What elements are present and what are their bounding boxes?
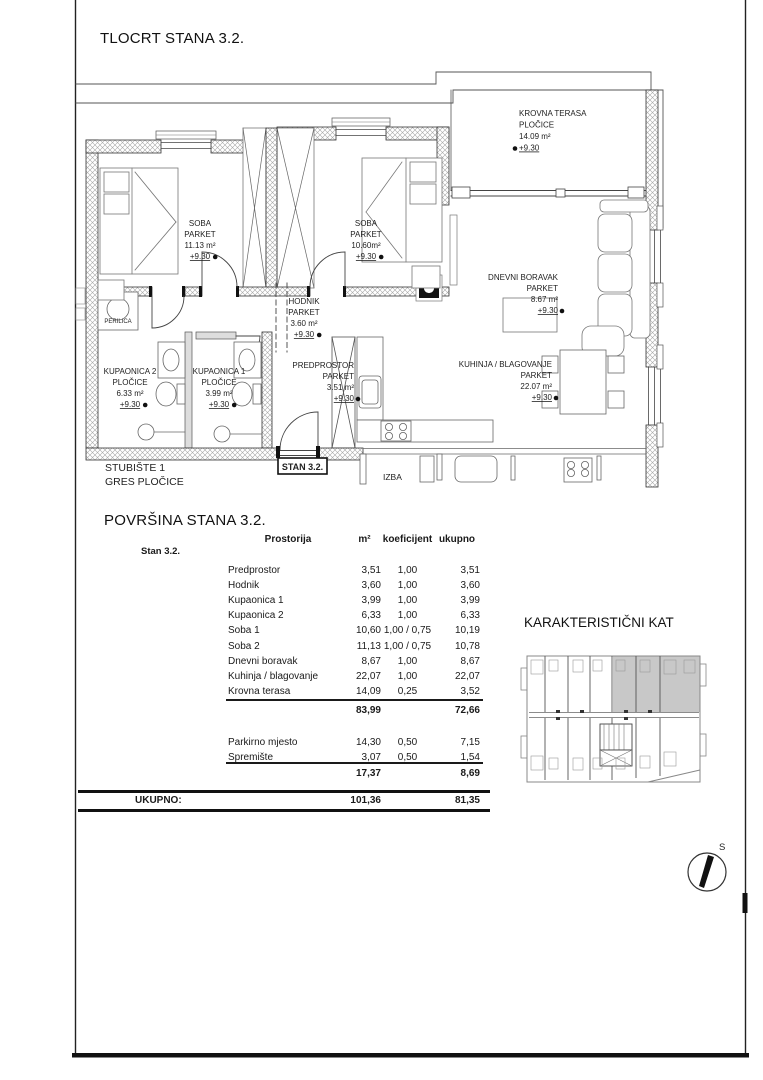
fold-mark xyxy=(743,893,748,913)
level-marker-soba-1 xyxy=(379,255,384,260)
cell-m2: 3,51 xyxy=(348,565,381,576)
room-label-kupaonica-2: +9.30 xyxy=(120,400,141,409)
total-rule-top xyxy=(78,790,490,793)
cell-total: 7,15 xyxy=(434,737,480,748)
subtotal1-total: 72,66 xyxy=(434,705,480,716)
cell-name: Soba 1 xyxy=(228,625,348,636)
room-label-predprostor: PARKET xyxy=(323,372,355,381)
table-row: Hodnik3,601,003,60 xyxy=(228,576,480,591)
room-label-soba-2: +9.30 xyxy=(190,252,211,261)
toilet-kupaonica-2 xyxy=(156,382,185,406)
cell-name: Soba 2 xyxy=(228,641,348,652)
room-label-dnevni-boravak: 8.67 m² xyxy=(531,295,558,304)
room-label-dnevni-boravak: DNEVNI BORAVAK xyxy=(488,273,559,282)
total-rule-bottom xyxy=(78,809,490,812)
room-label-predprostor: PREDPROSTOR xyxy=(292,361,354,370)
subtotal-row-2: 17,37 8,69 xyxy=(228,764,480,779)
col-ukupno: ukupno xyxy=(434,534,480,545)
level-marker-kupaonica-2 xyxy=(143,403,148,408)
room-label-krovna-terasa: KROVNA TERASA xyxy=(519,109,587,118)
room-label-krovna-terasa: +9.30 xyxy=(519,144,540,153)
window-bedroom-middle xyxy=(332,118,390,136)
room-label-soba-1: +9.30 xyxy=(356,252,377,261)
terrace-glass-wall xyxy=(451,90,646,198)
level-marker-predprostor xyxy=(356,397,361,402)
subtotal2-m2: 17,37 xyxy=(348,768,381,779)
table-row: Kupaonica 26,331,006,33 xyxy=(228,606,480,621)
room-label-predprostor: 3.51 m² xyxy=(327,383,354,392)
cell-total: 3,60 xyxy=(434,580,480,591)
subtotal1-m2: 83,99 xyxy=(348,705,381,716)
table-rows-apartment: Predprostor3,511,003,51Hodnik3,601,003,6… xyxy=(228,561,480,697)
cell-koef: 1,00 xyxy=(381,565,434,576)
subtotal-row-1: 83,99 72,66 xyxy=(228,701,480,716)
room-label-predprostor: +9.30 xyxy=(334,394,355,403)
window-bedroom-left xyxy=(156,131,216,149)
cell-total: 3,99 xyxy=(434,595,480,606)
room-label-kuhinja-blagovanje: PARKET xyxy=(521,371,553,380)
cell-m2: 6,33 xyxy=(348,610,381,621)
room-label-kupaonica-1: +9.30 xyxy=(209,400,230,409)
cell-m2: 3,60 xyxy=(348,580,381,591)
cell-name: Hodnik xyxy=(228,580,348,591)
col-m2: m² xyxy=(348,534,381,545)
room-label-soba-2: SOBA xyxy=(189,219,212,228)
north-arrow: S xyxy=(688,842,726,891)
predprostor-closet xyxy=(332,337,355,448)
room-label-hodnik: 3.60 m² xyxy=(290,319,317,328)
cell-total: 3,52 xyxy=(434,686,480,697)
cell-koef: 1,00 / 0,75 xyxy=(381,625,434,636)
cell-koef: 1,00 / 0,75 xyxy=(381,641,434,652)
room-label-stubiste: STUBIŠTE 1 xyxy=(105,461,165,474)
room-label-soba-1: PARKET xyxy=(350,230,382,239)
north-label: S xyxy=(719,842,725,853)
level-marker-kupaonica-1 xyxy=(232,403,237,408)
room-label-soba-1: 10.60m² xyxy=(351,241,381,250)
room-label-soba-2: PARKET xyxy=(184,230,216,239)
room-label-stubiste: GRES PLOČICE xyxy=(105,475,184,488)
room-label-dnevni-boravak: PARKET xyxy=(527,284,559,293)
radiator-kupaonica-1 xyxy=(214,426,262,442)
cell-name: Kuhinja / blagovanje xyxy=(228,671,348,682)
stan-label-box: STAN 3.2. xyxy=(278,458,327,474)
table-row: Soba 110,601,00 / 0,7510,19 xyxy=(228,621,480,636)
col-prostorija: Prostorija xyxy=(228,534,348,545)
tv-cabinet xyxy=(450,215,457,285)
room-label-kupaonica-1: PLOČICE xyxy=(201,378,236,387)
room-label-kuhinja-blagovanje: +9.30 xyxy=(532,393,553,402)
level-marker-hodnik xyxy=(317,333,322,338)
total-ukupno: 81,35 xyxy=(360,795,480,806)
room-label-kupaonica-2: KUPAONICA 2 xyxy=(104,367,157,376)
cell-m2: 14,30 xyxy=(348,737,381,748)
bed-left xyxy=(98,168,178,300)
door-bedroom-middle xyxy=(310,252,345,287)
cell-m2: 14,09 xyxy=(348,686,381,697)
cell-name: Dnevni boravak xyxy=(228,656,348,667)
sofa xyxy=(582,200,650,356)
door-entry xyxy=(280,412,318,450)
cell-total: 3,51 xyxy=(434,565,480,576)
room-label-perilica: PERILICA xyxy=(104,319,131,325)
cell-koef: 0,25 xyxy=(381,686,434,697)
cell-m2: 22,07 xyxy=(348,671,381,682)
room-label-kupaonica-2: 6.33 m² xyxy=(116,389,143,398)
cell-total: 22,07 xyxy=(434,671,480,682)
table-row: Kupaonica 13,991,003,99 xyxy=(228,591,480,606)
cell-total: 10,19 xyxy=(434,625,480,636)
lower-rooms xyxy=(360,449,646,485)
room-label-hodnik: HODNIK xyxy=(288,297,320,306)
table-row: Dnevni boravak8,671,008,67 xyxy=(228,652,480,667)
radiator-kupaonica-2 xyxy=(138,424,185,440)
cell-name: Predprostor xyxy=(228,565,348,576)
room-label-dnevni-boravak: +9.30 xyxy=(538,306,559,315)
cell-m2: 3,99 xyxy=(348,595,381,606)
cell-koef: 1,00 xyxy=(381,595,434,606)
cell-koef: 0,50 xyxy=(381,737,434,748)
table-group-label: Stan 3.2. xyxy=(141,546,180,557)
cell-m2: 10,60 xyxy=(348,625,381,636)
cell-koef: 1,00 xyxy=(381,671,434,682)
room-label-kupaonica-1: 3.99 m² xyxy=(205,389,232,398)
cell-total: 10,78 xyxy=(434,641,480,652)
highlighted-unit xyxy=(613,656,700,712)
sink-kupaonica-2 xyxy=(158,342,185,378)
cell-name: Krovna terasa xyxy=(228,686,348,697)
col-koeficijent: koeficijent xyxy=(381,534,434,545)
cell-name: Kupaonica 2 xyxy=(228,610,348,621)
room-label-krovna-terasa: PLOČICE xyxy=(519,121,554,130)
wardrobe-closets xyxy=(243,128,314,288)
dining-table xyxy=(542,350,624,414)
level-marker-dnevni-boravak xyxy=(560,309,565,314)
room-label-kuhinja-blagovanje: 22.07 m² xyxy=(520,382,552,391)
level-marker-krovna-terasa xyxy=(513,146,518,151)
table-row: Soba 211,131,00 / 0,7510,78 xyxy=(228,636,480,651)
room-label-krovna-terasa: 14.09 m² xyxy=(519,132,551,141)
key-plan xyxy=(521,656,706,782)
room-label-izba: IZBA xyxy=(383,472,402,482)
total-m2: 101,36 xyxy=(228,795,381,806)
room-label-kupaonica-1: KUPAONICA 1 xyxy=(193,367,246,376)
table-row: Parkirno mjesto14,300,507,15 xyxy=(228,733,480,748)
cell-koef: 1,00 xyxy=(381,580,434,591)
door-kupaonica-2 xyxy=(152,296,184,328)
cell-name: Kupaonica 1 xyxy=(228,595,348,606)
entry-threshold xyxy=(278,451,318,456)
room-label-hodnik: PARKET xyxy=(288,308,320,317)
cell-total: 8,67 xyxy=(434,656,480,667)
table-rows-extras: Parkirno mjesto14,300,507,15Spremište3,0… xyxy=(228,733,480,763)
cell-koef: 1,00 xyxy=(381,656,434,667)
cell-total: 6,33 xyxy=(434,610,480,621)
level-marker-kuhinja-blagovanje xyxy=(554,396,559,401)
level-marker-soba-2 xyxy=(213,255,218,260)
table-row: Predprostor3,511,003,51 xyxy=(228,561,480,576)
stan-label-text: STAN 3.2. xyxy=(282,462,323,472)
cell-koef: 1,00 xyxy=(381,610,434,621)
table-row: Spremište3,070,501,54 xyxy=(228,748,480,763)
table-row: Kuhinja / blagovanje22,071,0022,07 xyxy=(228,667,480,682)
cell-name: Parkirno mjesto xyxy=(228,737,348,748)
table-header: Prostorija m² koeficijent ukupno xyxy=(228,530,480,545)
room-label-kupaonica-2: PLOČICE xyxy=(112,378,147,387)
total-label: UKUPNO: xyxy=(135,795,182,806)
cell-m2: 8,67 xyxy=(348,656,381,667)
table-row: Krovna terasa14,090,253,52 xyxy=(228,682,480,697)
cell-m2: 11,13 xyxy=(348,641,381,652)
room-label-soba-1: SOBA xyxy=(355,219,378,228)
room-label-kuhinja-blagovanje: KUHINJA / BLAGOVANJE xyxy=(459,360,552,369)
kitchen-counter xyxy=(357,337,493,442)
subtotal2-total: 8,69 xyxy=(434,768,480,779)
drawing-sheet: TLOCRT STANA 3.2. POVRŠINA STANA 3.2. KA… xyxy=(0,0,763,1080)
floor-plan: STAN 3.2. KROVNA TERASAPLOČICE14.09 m²+9… xyxy=(76,72,663,488)
room-label-soba-2: 11.13 m² xyxy=(185,241,216,250)
room-label-hodnik: +9.30 xyxy=(294,330,315,339)
